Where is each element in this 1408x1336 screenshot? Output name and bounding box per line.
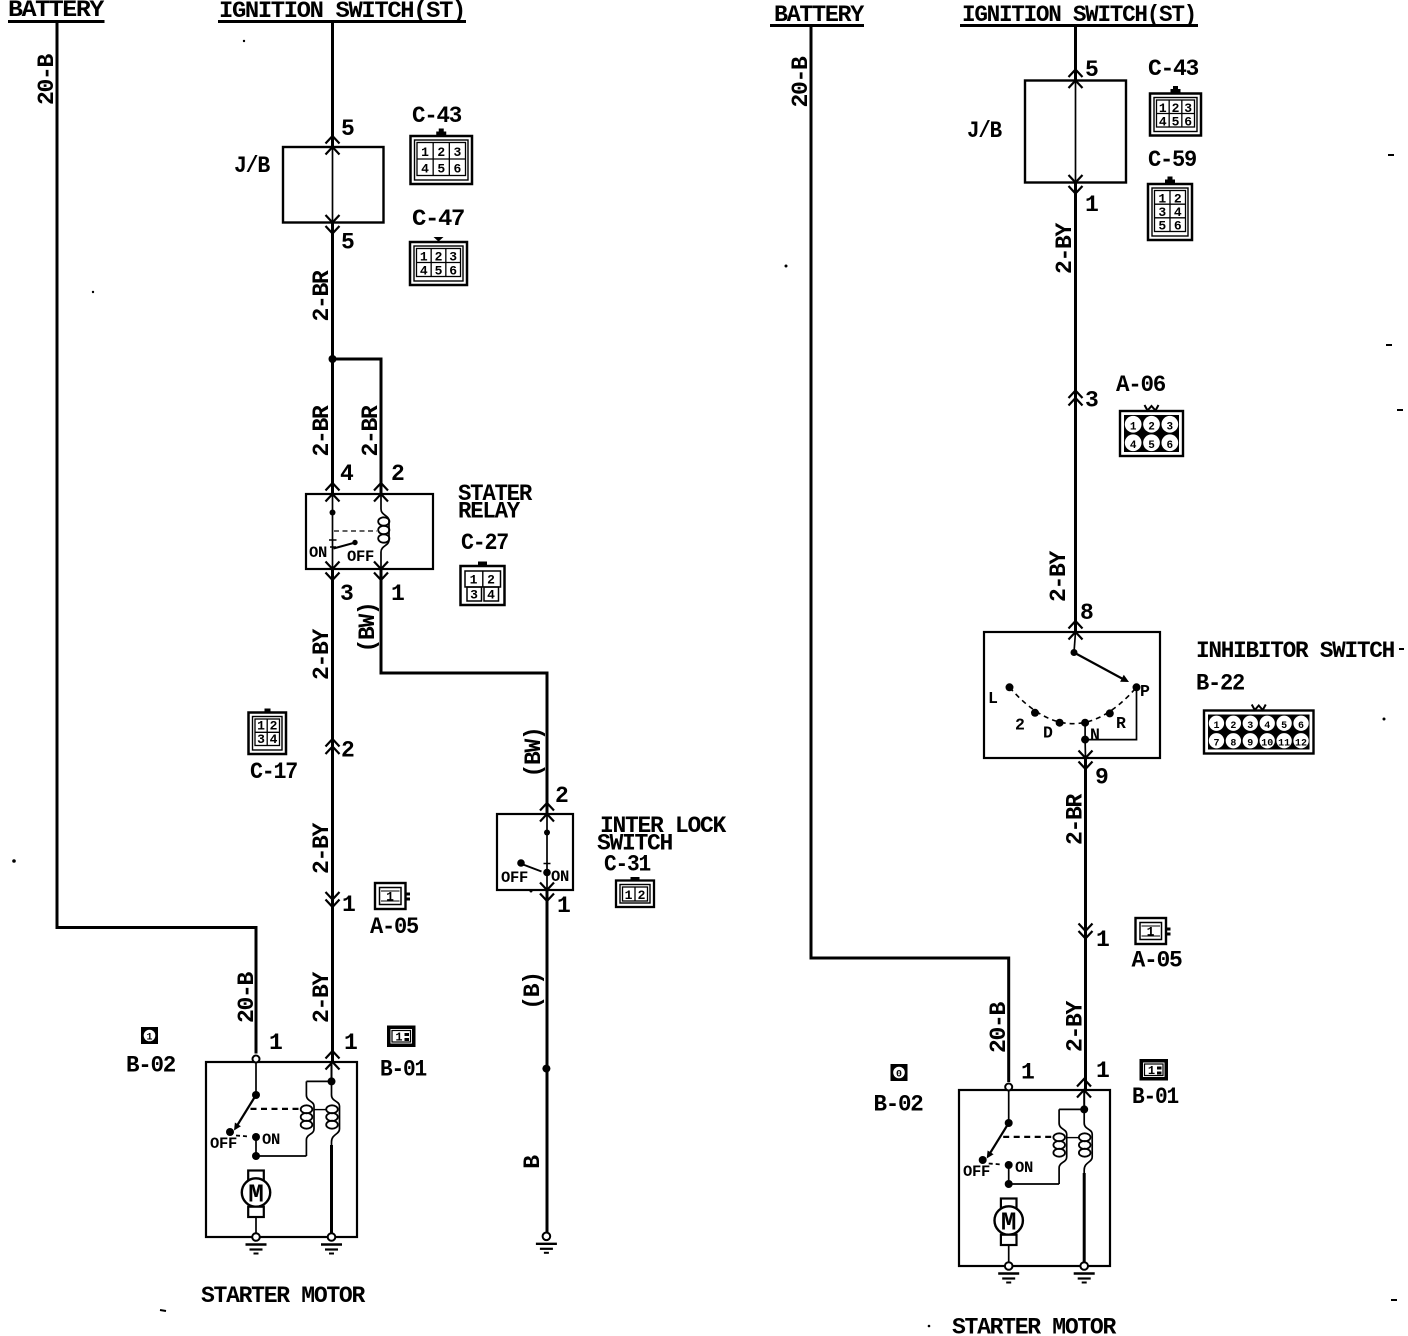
svg-text:1: 1 [1148, 1064, 1155, 1078]
svg-text:M: M [248, 1180, 264, 1210]
svg-text:2-BY: 2-BY [1052, 223, 1078, 275]
svg-text:1: 1 [625, 888, 633, 903]
svg-text:A-06: A-06 [1116, 372, 1165, 398]
svg-text:6: 6 [1174, 219, 1182, 234]
svg-text:STARTER MOTOR: STARTER MOTOR [201, 1283, 366, 1309]
svg-text:20-B: 20-B [986, 1002, 1012, 1054]
svg-text:C-47: C-47 [412, 206, 465, 232]
svg-text:1: 1 [146, 1033, 152, 1044]
svg-text:20-B: 20-B [234, 972, 260, 1024]
svg-text:5: 5 [1148, 440, 1155, 452]
svg-text:2: 2 [555, 783, 568, 809]
svg-text:4: 4 [1264, 721, 1270, 732]
svg-text:2: 2 [487, 573, 495, 588]
svg-text:RELAY: RELAY [458, 499, 520, 525]
svg-text:D: D [1043, 724, 1053, 743]
svg-text:(BW): (BW) [521, 727, 547, 777]
svg-text:ON: ON [309, 544, 327, 562]
svg-text:20-B: 20-B [788, 56, 814, 108]
svg-text:STARTER MOTOR: STARTER MOTOR [952, 1315, 1117, 1336]
svg-text:1: 1 [342, 892, 355, 918]
svg-text:5: 5 [1085, 57, 1098, 83]
svg-text:1: 1 [1147, 925, 1155, 940]
svg-text:C-43: C-43 [1148, 56, 1198, 82]
svg-text:1: 1 [269, 1030, 282, 1056]
svg-text:A-05: A-05 [1132, 948, 1182, 974]
svg-text:C-43: C-43 [412, 103, 461, 129]
svg-text:6: 6 [1298, 721, 1304, 732]
svg-text:L: L [988, 689, 998, 708]
svg-text:6: 6 [1184, 114, 1192, 129]
svg-text:5: 5 [435, 264, 443, 279]
svg-text:0: 0 [896, 1070, 902, 1081]
svg-text:OFF: OFF [501, 869, 528, 887]
svg-text:5: 5 [341, 230, 354, 256]
svg-text:1: 1 [1021, 1060, 1034, 1086]
svg-text:P: P [1140, 682, 1150, 701]
svg-text:4: 4 [421, 161, 429, 176]
svg-text:3: 3 [340, 581, 353, 607]
svg-text:2-BY: 2-BY [309, 629, 335, 681]
svg-text:ON: ON [262, 1131, 280, 1149]
svg-text:1: 1 [1085, 192, 1098, 218]
svg-text:4: 4 [487, 588, 495, 603]
svg-text:2: 2 [437, 145, 445, 160]
svg-text:5: 5 [1172, 114, 1180, 129]
svg-text:3: 3 [1085, 388, 1098, 414]
svg-text:C-31: C-31 [604, 852, 650, 878]
svg-text:2: 2 [1148, 421, 1155, 433]
svg-text:3: 3 [454, 145, 462, 160]
svg-text:2: 2 [1015, 716, 1025, 735]
svg-text:2: 2 [341, 738, 354, 764]
svg-text:C-59: C-59 [1148, 147, 1196, 173]
svg-text:1: 1 [1096, 1058, 1109, 1084]
svg-text:4: 4 [420, 264, 428, 279]
svg-text:B-01: B-01 [1132, 1084, 1178, 1110]
svg-text:12: 12 [1295, 738, 1307, 749]
svg-text:5: 5 [1281, 721, 1287, 732]
svg-text:1: 1 [557, 893, 570, 919]
svg-text:2-BY: 2-BY [1063, 1001, 1089, 1053]
svg-text:B-02: B-02 [126, 1053, 175, 1079]
svg-text:6: 6 [449, 264, 457, 279]
svg-text:4: 4 [270, 732, 278, 747]
svg-text:J/B: J/B [967, 118, 1002, 144]
svg-text:1: 1 [391, 581, 404, 607]
svg-text:B-22: B-22 [1196, 671, 1244, 697]
svg-text:4: 4 [340, 461, 354, 487]
svg-text:BATTERY: BATTERY [8, 0, 105, 23]
svg-text:(B): (B) [520, 972, 546, 1010]
svg-text:1: 1 [1213, 721, 1219, 732]
svg-text:M: M [1001, 1208, 1017, 1238]
svg-text:11: 11 [1278, 738, 1290, 749]
svg-text:2-BY: 2-BY [309, 972, 335, 1024]
svg-text:5: 5 [1158, 219, 1166, 234]
svg-text:2: 2 [638, 888, 646, 903]
svg-text:3: 3 [1167, 421, 1174, 433]
svg-text:6: 6 [1167, 440, 1174, 452]
svg-text:10: 10 [1261, 738, 1273, 749]
svg-text:2-BR: 2-BR [358, 405, 384, 457]
svg-text:1: 1 [421, 145, 429, 160]
svg-text:2-BY: 2-BY [1046, 551, 1072, 603]
svg-text:1: 1 [420, 250, 428, 265]
svg-text:1: 1 [1130, 421, 1137, 433]
svg-text:8: 8 [1230, 738, 1236, 749]
svg-text:B-02: B-02 [874, 1092, 923, 1118]
svg-text:C-17: C-17 [250, 759, 297, 785]
svg-text:20-B: 20-B [34, 54, 60, 106]
svg-text:2: 2 [435, 250, 443, 265]
svg-text:OFF: OFF [347, 548, 374, 566]
svg-text:1: 1 [470, 573, 478, 588]
svg-text:9: 9 [1247, 738, 1253, 749]
svg-text:A-05: A-05 [370, 914, 418, 940]
svg-text:2-BY: 2-BY [309, 823, 335, 875]
svg-text:J/B: J/B [234, 153, 270, 179]
svg-text:3: 3 [257, 732, 265, 747]
svg-text:(BW): (BW) [355, 602, 381, 652]
svg-text:B: B [520, 1155, 546, 1169]
svg-text:ON: ON [1015, 1159, 1033, 1177]
svg-text:2-BR: 2-BR [309, 270, 335, 322]
svg-text:3: 3 [449, 250, 457, 265]
svg-text:OFF: OFF [210, 1135, 237, 1153]
svg-text:2: 2 [1230, 721, 1236, 732]
svg-text:OFF: OFF [963, 1163, 990, 1181]
svg-text:C-27: C-27 [461, 530, 508, 556]
svg-text:7: 7 [1213, 738, 1219, 749]
svg-text:N: N [1090, 726, 1100, 745]
svg-text:B-01: B-01 [380, 1057, 426, 1083]
svg-text:2: 2 [391, 461, 404, 487]
svg-text:1: 1 [386, 890, 394, 905]
svg-text:3: 3 [1247, 721, 1253, 732]
svg-text:1: 1 [344, 1030, 357, 1056]
svg-text:6: 6 [454, 161, 462, 176]
svg-text:3: 3 [470, 588, 478, 603]
svg-text:4: 4 [1130, 440, 1137, 452]
svg-text:2-BR: 2-BR [1063, 794, 1089, 846]
svg-text:8: 8 [1080, 600, 1093, 626]
svg-text:5: 5 [341, 116, 354, 142]
svg-text:5: 5 [437, 161, 445, 176]
svg-text:1: 1 [1096, 927, 1109, 953]
svg-text:INHIBITOR SWITCH: INHIBITOR SWITCH [1196, 638, 1394, 664]
svg-text:2-BR: 2-BR [309, 405, 335, 457]
svg-text:4: 4 [1159, 114, 1167, 129]
svg-text:9: 9 [1095, 765, 1108, 791]
svg-text:R: R [1116, 714, 1126, 733]
svg-text:1: 1 [395, 1031, 402, 1045]
